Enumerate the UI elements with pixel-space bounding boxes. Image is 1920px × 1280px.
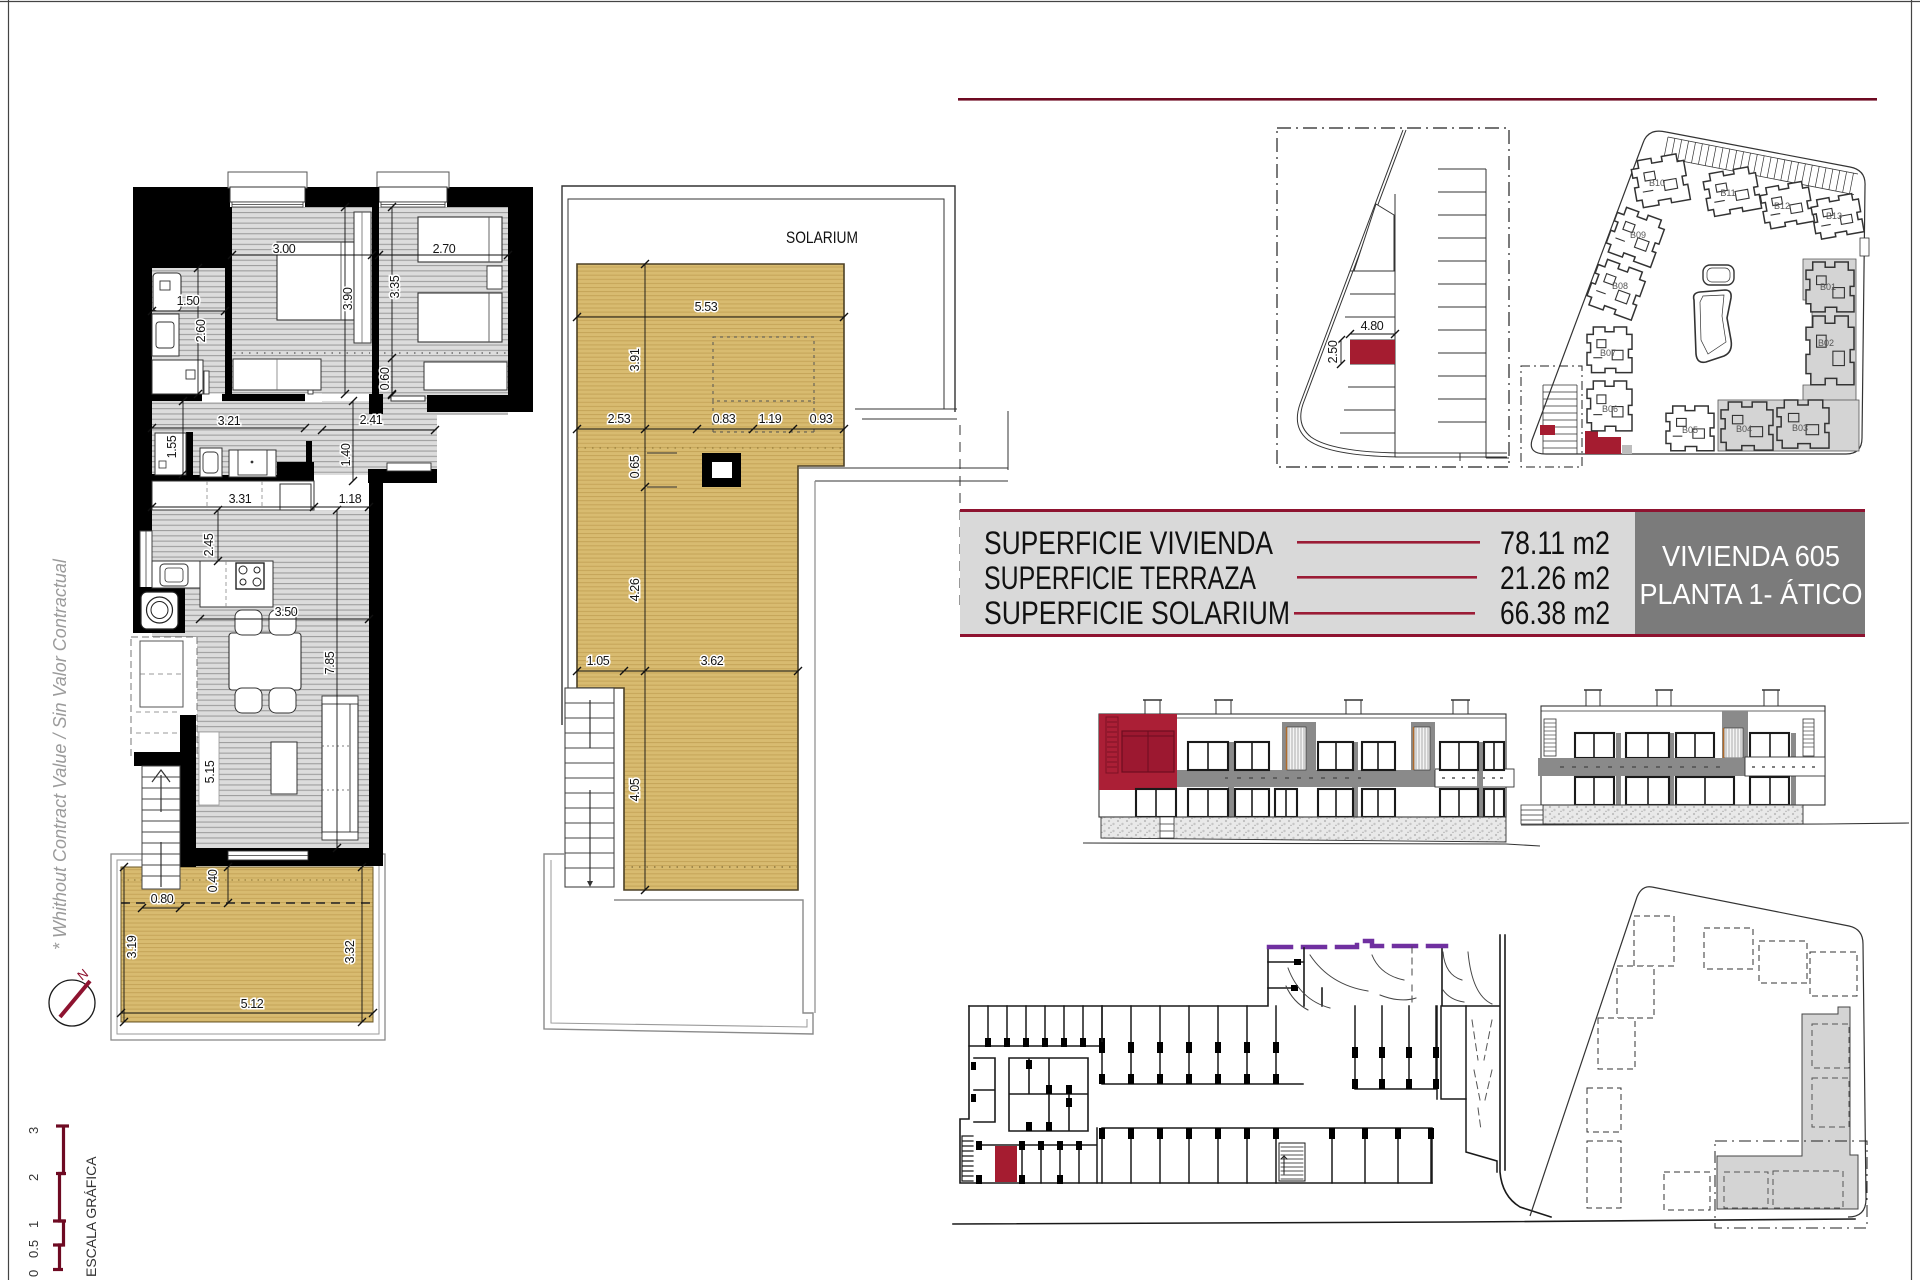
svg-text:2: 2 [26, 1174, 41, 1181]
svg-text:3.35: 3.35 [388, 275, 402, 298]
svg-text:1.50: 1.50 [177, 294, 200, 308]
svg-text:B03: B03 [1792, 423, 1808, 433]
svg-text:3.50: 3.50 [275, 605, 298, 619]
svg-text:B09: B09 [1630, 230, 1646, 240]
svg-text:2.70: 2.70 [433, 242, 456, 256]
svg-text:3.00: 3.00 [273, 242, 296, 256]
svg-text:B10: B10 [1649, 178, 1665, 188]
svg-text:5.12: 5.12 [241, 997, 264, 1011]
svg-text:5.53: 5.53 [695, 300, 718, 314]
svg-text:* Whithout Contract Value / Si: * Whithout Contract Value / Sin Valor Co… [50, 558, 70, 950]
svg-text:2.41: 2.41 [360, 413, 383, 427]
svg-text:3: 3 [26, 1127, 41, 1134]
svg-text:2.60: 2.60 [194, 319, 208, 342]
svg-text:7.85: 7.85 [323, 651, 337, 674]
svg-text:2.50: 2.50 [1326, 340, 1340, 363]
svg-text:B04: B04 [1736, 424, 1752, 434]
svg-text:2.53: 2.53 [608, 412, 631, 426]
svg-text:SUPERFICIE VIVIENDA: SUPERFICIE VIVIENDA [984, 525, 1274, 561]
svg-text:1.18: 1.18 [339, 492, 362, 506]
svg-text:3.21: 3.21 [218, 414, 241, 428]
svg-text:1.05: 1.05 [587, 654, 610, 668]
svg-text:4.26: 4.26 [628, 578, 642, 601]
svg-text:2.45: 2.45 [202, 533, 216, 556]
svg-text:3.90: 3.90 [341, 287, 355, 310]
svg-text:B02: B02 [1818, 338, 1834, 348]
svg-text:3.62: 3.62 [701, 654, 724, 668]
svg-text:21.26 m2: 21.26 m2 [1500, 560, 1610, 596]
svg-text:0.65: 0.65 [628, 455, 642, 478]
svg-text:VIVIENDA 605: VIVIENDA 605 [1662, 541, 1840, 573]
svg-text:PLANTA 1- ÁTICO: PLANTA 1- ÁTICO [1640, 578, 1863, 611]
svg-text:4.80: 4.80 [1361, 319, 1384, 333]
svg-text:3.91: 3.91 [628, 348, 642, 371]
svg-text:0.93: 0.93 [810, 412, 833, 426]
svg-text:0.5: 0.5 [26, 1240, 41, 1258]
svg-text:1.40: 1.40 [339, 443, 353, 466]
svg-text:1.19: 1.19 [759, 412, 782, 426]
svg-text:B07: B07 [1600, 348, 1616, 358]
svg-text:0: 0 [26, 1270, 41, 1277]
svg-text:B06: B06 [1602, 404, 1618, 414]
svg-text:5.15: 5.15 [203, 760, 217, 783]
svg-text:0.60: 0.60 [378, 367, 392, 390]
svg-text:0.80: 0.80 [151, 892, 174, 906]
svg-text:1.55: 1.55 [165, 435, 179, 458]
svg-text:3.31: 3.31 [229, 492, 252, 506]
svg-text:66.38 m2: 66.38 m2 [1500, 595, 1610, 631]
svg-text:0.83: 0.83 [713, 412, 736, 426]
svg-text:B01: B01 [1820, 282, 1836, 292]
svg-text:4.05: 4.05 [628, 778, 642, 801]
svg-text:B08: B08 [1612, 281, 1628, 291]
svg-text:ESCALA GRÁFICA: ESCALA GRÁFICA [83, 1156, 99, 1277]
svg-text:78.11 m2: 78.11 m2 [1500, 525, 1610, 561]
svg-text:0.40: 0.40 [206, 869, 220, 892]
svg-text:B11: B11 [1720, 188, 1735, 198]
svg-text:3.32: 3.32 [343, 940, 357, 963]
svg-text:SOLARIUM: SOLARIUM [786, 228, 858, 247]
svg-text:B13: B13 [1826, 211, 1842, 221]
svg-text:3.19: 3.19 [125, 935, 139, 958]
svg-text:SUPERFICIE SOLARIUM: SUPERFICIE SOLARIUM [984, 595, 1290, 631]
svg-text:1: 1 [26, 1221, 41, 1228]
svg-text:B05: B05 [1682, 425, 1698, 435]
svg-text:SUPERFICIE TERRAZA: SUPERFICIE TERRAZA [984, 560, 1257, 596]
svg-text:B12: B12 [1774, 201, 1790, 211]
